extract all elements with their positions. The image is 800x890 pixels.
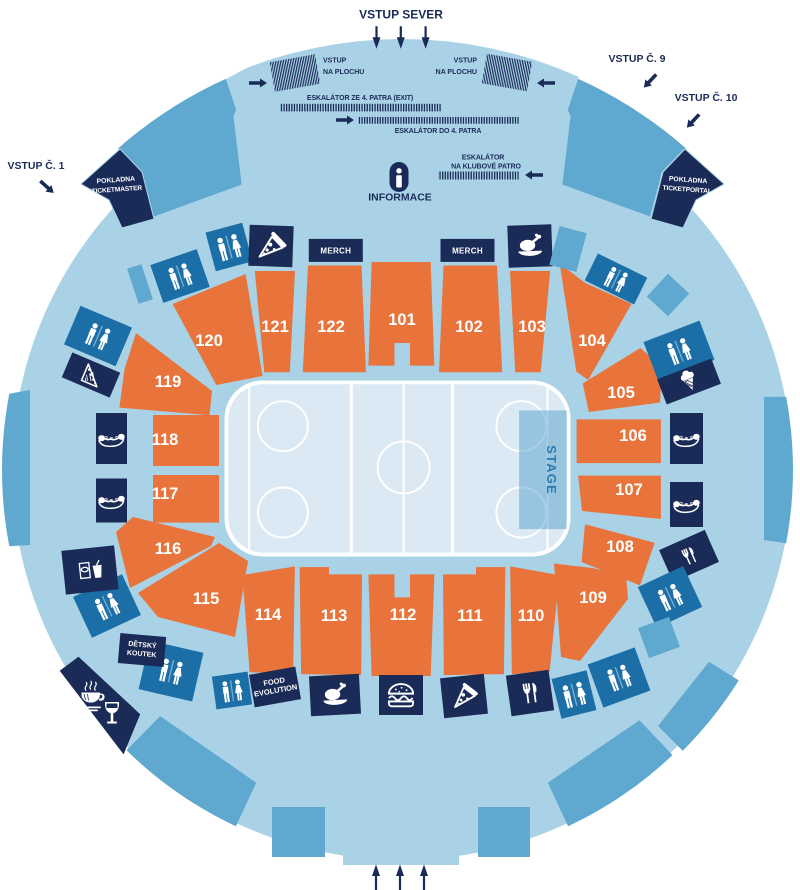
svg-text:VSTUP: VSTUP xyxy=(323,58,347,65)
svg-text:116: 116 xyxy=(155,540,182,558)
svg-text:107: 107 xyxy=(615,481,643,499)
svg-text:114: 114 xyxy=(255,606,282,624)
svg-text:118: 118 xyxy=(152,431,179,449)
svg-text:ESKALÁTOR DO 4. PATRA: ESKALÁTOR DO 4. PATRA xyxy=(395,126,482,135)
svg-text:109: 109 xyxy=(579,589,607,607)
svg-text:VSTUP Č. 1: VSTUP Č. 1 xyxy=(8,159,65,172)
svg-text:INFORMACE: INFORMACE xyxy=(368,192,432,204)
svg-text:115: 115 xyxy=(193,590,220,608)
svg-text:ESKALÁTOR ZE 4. PATRA (EXIT): ESKALÁTOR ZE 4. PATRA (EXIT) xyxy=(307,93,413,102)
svg-text:122: 122 xyxy=(317,318,345,336)
svg-text:VSTUP: VSTUP xyxy=(454,58,478,65)
svg-text:108: 108 xyxy=(606,538,634,556)
svg-text:120: 120 xyxy=(195,332,223,350)
svg-text:110: 110 xyxy=(518,607,545,625)
svg-text:112: 112 xyxy=(390,606,417,624)
svg-text:NA KLUBOVÉ PATRO: NA KLUBOVÉ PATRO xyxy=(451,161,521,170)
svg-text:VSTUP Č. 9: VSTUP Č. 9 xyxy=(609,52,666,65)
svg-text:121: 121 xyxy=(261,318,289,336)
svg-text:101: 101 xyxy=(388,311,416,329)
svg-text:ESKALÁTOR: ESKALÁTOR xyxy=(462,153,505,162)
svg-text:103: 103 xyxy=(518,318,546,336)
svg-text:106: 106 xyxy=(619,427,647,445)
svg-text:111: 111 xyxy=(457,607,483,625)
svg-text:104: 104 xyxy=(578,332,606,350)
svg-text:STAGE: STAGE xyxy=(544,445,559,495)
svg-text:113: 113 xyxy=(321,607,348,625)
svg-text:NA PLOCHU: NA PLOCHU xyxy=(436,69,477,76)
svg-text:VSTUP Č. 10: VSTUP Č. 10 xyxy=(675,91,738,104)
svg-text:MERCH: MERCH xyxy=(320,247,351,256)
svg-text:MERCH: MERCH xyxy=(452,247,483,256)
svg-text:102: 102 xyxy=(455,318,483,336)
svg-text:105: 105 xyxy=(607,384,635,402)
svg-text:119: 119 xyxy=(155,373,182,391)
svg-text:117: 117 xyxy=(152,485,179,503)
svg-text:NA PLOCHU: NA PLOCHU xyxy=(323,69,364,76)
svg-text:VSTUP SEVER: VSTUP SEVER xyxy=(359,8,443,22)
